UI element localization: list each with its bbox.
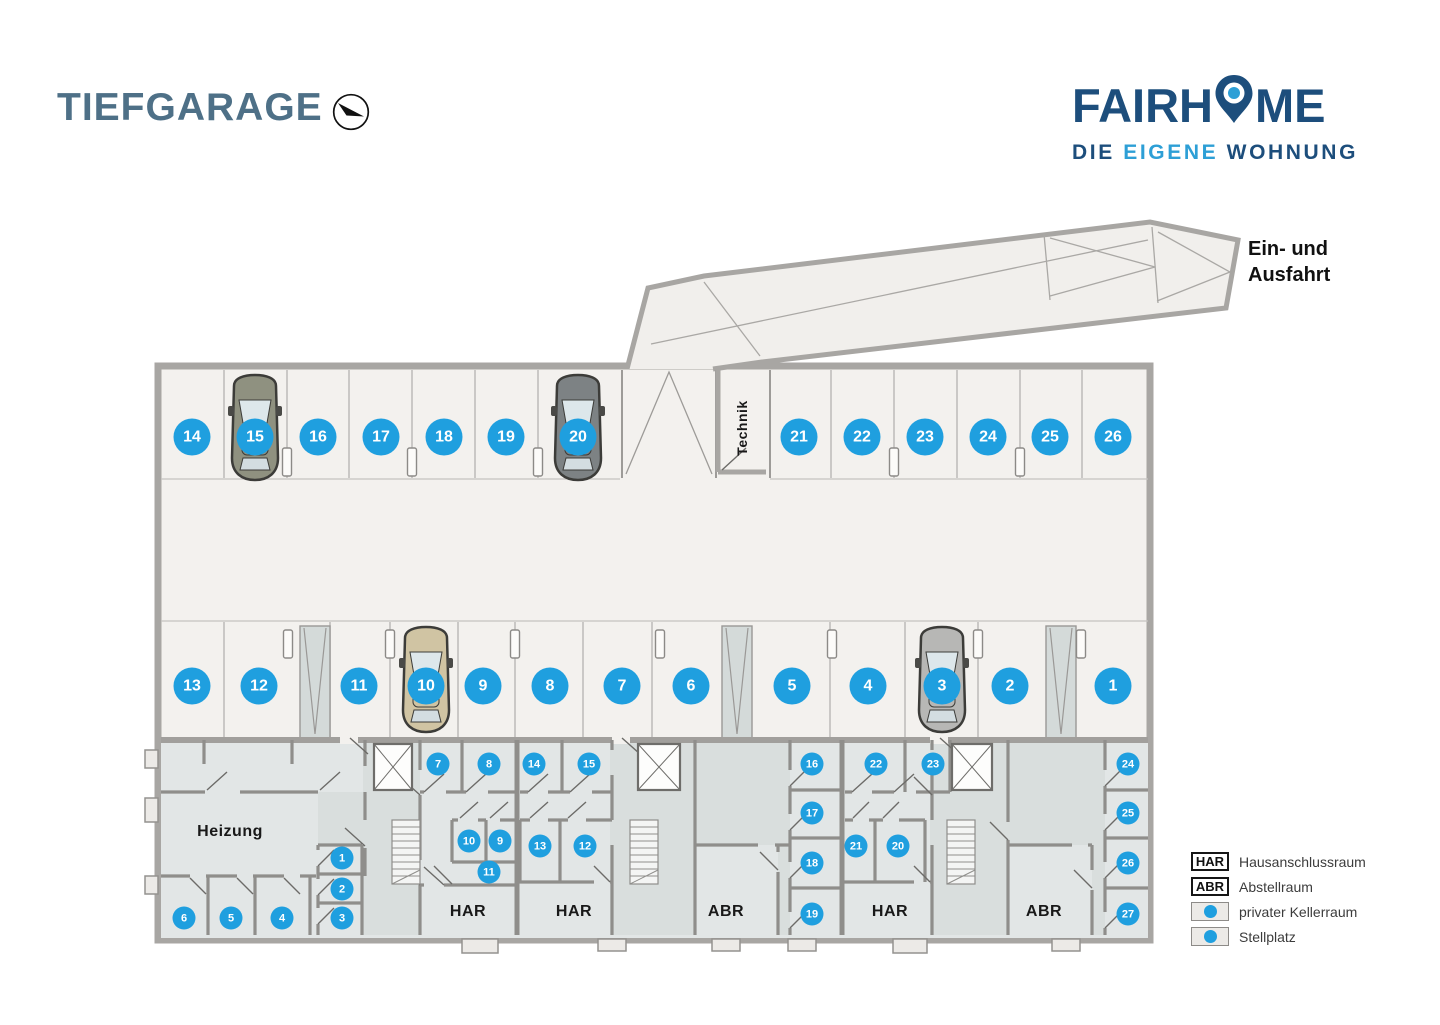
abr-room-label-2: ABR	[1026, 903, 1062, 921]
legend-row-stellplatz: Stellplatz	[1191, 924, 1366, 949]
entrance-label-line2: Ausfahrt	[1248, 262, 1330, 288]
entrance-ramp	[627, 222, 1238, 369]
legend-abr-label: Abstellraum	[1239, 879, 1313, 895]
car-spot-20	[551, 375, 605, 480]
legend-row-kellerraum: privater Kellerraum	[1191, 899, 1366, 924]
har-room-label-3: HAR	[872, 903, 908, 921]
car-spot-15	[228, 375, 282, 480]
legend-abr-symbol: ABR	[1191, 877, 1229, 896]
tiefgarage-floorplan-page: TIEFGARAGE FAIRH ME DIE EIGENE WOHNUNG	[0, 0, 1440, 1025]
legend-har-label: Hausanschlussraum	[1239, 854, 1366, 870]
legend-har-symbol: HAR	[1191, 852, 1229, 871]
legend: HAR Hausanschlussraum ABR Abstellraum pr…	[1191, 849, 1366, 949]
legend-row-abr: ABR Abstellraum	[1191, 874, 1366, 899]
legend-row-har: HAR Hausanschlussraum	[1191, 849, 1366, 874]
legend-kellerraum-label: privater Kellerraum	[1239, 904, 1357, 920]
har-room-label-1: HAR	[450, 903, 486, 921]
car-spot-3	[915, 627, 969, 732]
har-room-label-2: HAR	[556, 903, 592, 921]
car-spot-10	[399, 627, 453, 732]
legend-stellplatz-symbol	[1191, 927, 1229, 946]
entrance-label-line1: Ein- und	[1248, 236, 1330, 262]
technik-room-label: Technik	[734, 400, 750, 455]
abr-room-label-1: ABR	[708, 903, 744, 921]
legend-kellerraum-symbol	[1191, 902, 1229, 921]
entrance-exit-label: Ein- und Ausfahrt	[1248, 236, 1330, 288]
blue-dot-icon	[1204, 905, 1217, 918]
blue-dot-icon	[1204, 930, 1217, 943]
heizung-room-label: Heizung	[197, 823, 263, 841]
basement-level	[145, 736, 1148, 953]
legend-stellplatz-label: Stellplatz	[1239, 929, 1296, 945]
